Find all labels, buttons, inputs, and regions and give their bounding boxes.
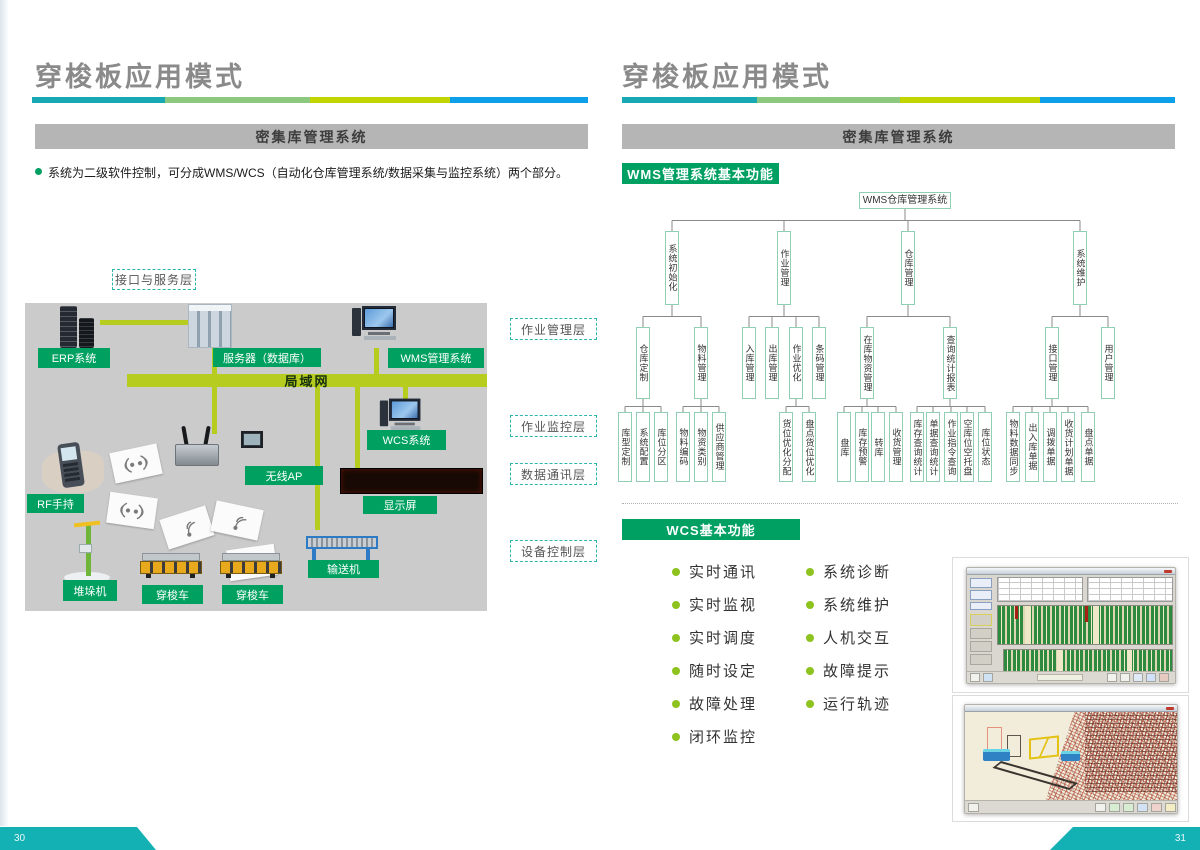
org-node-root: WMS仓库管理系统 (859, 192, 951, 209)
org-node-inbound: 入库管理 (742, 327, 756, 399)
accent-bar-blue (1040, 97, 1175, 103)
wifi-signal-icon (109, 443, 162, 483)
wcs-feature-label: 系统维护 (823, 594, 891, 615)
rack-empty-column (1057, 650, 1063, 672)
toolbar-button (1107, 673, 1117, 682)
wms-computer-icon (352, 306, 398, 348)
wcs-feature-item: 实时监视 (672, 588, 757, 621)
layer-label-data-comm: 数据通讯层 (510, 463, 597, 485)
link-lan-conveyor (315, 387, 320, 530)
bullet-icon (806, 568, 814, 576)
wcs-feature-label: 随时设定 (689, 660, 757, 681)
wcs-feature-list-left: 实时通讯 实时监视 实时调度 随时设定 故障处理 闭环监控 (672, 555, 757, 753)
alarm-button (1151, 803, 1162, 812)
bullet-icon (672, 667, 680, 675)
shuttle-car-icon (220, 553, 282, 579)
bullet-icon (806, 700, 814, 708)
wcs-feature-label: 故障提示 (823, 660, 891, 681)
label-wcs: WCS系统 (367, 430, 446, 450)
org-node-l3: 库位分区 (654, 412, 668, 482)
org-node-l13: 库存查询统计 (910, 412, 924, 482)
org-node-l11: 转库 (871, 412, 885, 482)
bullet-icon (806, 601, 814, 609)
page-number-tab: 31 (1050, 827, 1200, 850)
org-node-whdef: 仓库定制 (636, 327, 650, 399)
bullet-icon (672, 700, 680, 708)
wcs-feature-item: 实时通讯 (672, 555, 757, 588)
window-titlebar (967, 568, 1175, 575)
org-node-matmgmt: 物料管理 (694, 327, 708, 399)
org-node-barcode: 条码管理 (812, 327, 826, 399)
wcs-feature-label: 故障处理 (689, 693, 757, 714)
wifi-signal-icon (159, 505, 214, 549)
rf-handheld-icon (42, 443, 104, 495)
toolbar-button (983, 673, 993, 682)
page-number: 30 (14, 833, 25, 844)
label-display: 显示屏 (363, 496, 437, 514)
wcs-feature-item: 运行轨迹 (806, 687, 891, 720)
accent-bar-lime (900, 97, 1040, 103)
org-node-stockmat: 在库物资管理 (860, 327, 874, 399)
rack-alarm-cell (1085, 606, 1088, 622)
sidebar-button (970, 602, 992, 610)
network-diagram: 局域网 (25, 303, 487, 611)
wcs-feature-item: 实时调度 (672, 621, 757, 654)
org-node-l16: 空库位空托盘 (960, 412, 974, 482)
bullet-icon (35, 168, 42, 175)
accent-bar-lime (310, 97, 450, 103)
layer-label-operation-monitor: 作业监控层 (510, 415, 597, 437)
bullet-icon (806, 667, 814, 675)
window-titlebar (965, 705, 1177, 712)
wcs-feature-item: 系统维护 (806, 588, 891, 621)
org-node-outbound: 出库管理 (765, 327, 779, 399)
pointer-button (1165, 803, 1176, 812)
wcs-feature-item: 闭环监控 (672, 720, 757, 753)
wireless-ap-icon (175, 426, 235, 470)
org-node-l17: 库位状态 (978, 412, 992, 482)
rack-empty-column (1025, 606, 1031, 644)
rack-empty-column (1093, 606, 1099, 644)
stacker-crane-icon (62, 522, 112, 584)
window-toolbar (967, 671, 1175, 683)
label-conveyor: 输送机 (308, 560, 379, 578)
rack-wireframe-dense (1085, 712, 1178, 792)
org-node-l5: 物资类别 (694, 412, 708, 482)
org-node-l14: 单据查询统计 (926, 412, 940, 482)
bullet-icon (806, 634, 814, 642)
bullet-icon (672, 601, 680, 609)
fit-view-button (1137, 803, 1148, 812)
label-server: 服务器（数据库） (213, 348, 321, 367)
lock-button (1109, 803, 1120, 812)
org-node-job: 作业管理 (777, 231, 791, 305)
shuttle-3d-icon (1061, 751, 1080, 761)
wcs-feature-label: 闭环监控 (689, 726, 757, 747)
status-table (1087, 577, 1173, 602)
wcs-feature-item: 人机交互 (806, 621, 891, 654)
display-board-icon (340, 468, 483, 494)
wcs-monitor-screenshot (952, 557, 1189, 693)
page-title: 穿梭板应用模式 (622, 55, 832, 94)
layer-label-operation-mgmt: 作业管理层 (510, 318, 597, 340)
shuttle-car-icon (140, 553, 202, 579)
wcs-feature-label: 系统诊断 (823, 561, 891, 582)
wcs-feature-item: 故障提示 (806, 654, 891, 687)
org-node-maint: 系统维护 (1073, 231, 1087, 305)
org-node-l21: 收货计划单据 (1061, 412, 1075, 482)
org-node-l19: 出入库单据 (1025, 412, 1039, 482)
org-node-init: 系统初始化 (665, 231, 679, 305)
org-node-l18: 物料数据同步 (1006, 412, 1020, 482)
label-wms: WMS管理系统 (388, 348, 484, 368)
accent-bar-blue (450, 97, 588, 103)
org-node-l9: 盘库 (837, 412, 851, 482)
database-server-icon (188, 304, 232, 348)
wcs-feature-label: 实时通讯 (689, 561, 757, 582)
conveyor-icon (306, 528, 380, 562)
label-shuttle-b: 穿梭车 (222, 585, 283, 604)
status-table (997, 577, 1083, 602)
link-lan-wcs (403, 387, 408, 399)
org-node-l12: 收货管理 (889, 412, 903, 482)
sidebar-cell (970, 628, 992, 639)
page-number-tab: 30 (0, 827, 160, 850)
accent-bar-green (165, 97, 310, 103)
selected-cell-highlight (1029, 735, 1059, 759)
section-banner: 密集库管理系统 (35, 124, 588, 149)
accent-bar-teal (622, 97, 757, 103)
toolbar-button (1146, 673, 1156, 682)
org-node-l7: 货位优化分配 (779, 412, 793, 482)
org-node-iface: 接口管理 (1045, 327, 1059, 399)
label-stacker: 堆垛机 (63, 580, 117, 601)
org-node-l22: 盘点单据 (1081, 412, 1095, 482)
wcs-feature-item: 故障处理 (672, 687, 757, 720)
org-node-jobopt: 作业优化 (789, 327, 803, 399)
sidebar-cell (970, 641, 992, 652)
org-node-l10: 库存预警 (855, 412, 869, 482)
page-number: 31 (1175, 833, 1186, 844)
label-rf: RF手持 (27, 494, 84, 513)
label-shuttle-a: 穿梭车 (142, 585, 203, 604)
sidebar-button (970, 578, 992, 588)
org-node-l2: 系统配置 (636, 412, 650, 482)
toolbar-button (1120, 673, 1130, 682)
sidebar-cell (970, 614, 992, 626)
rack-map-lower (1003, 649, 1173, 673)
erp-server-icon (52, 306, 100, 348)
org-node-l1: 库型定制 (618, 412, 632, 482)
warehouse-3d-screenshot (952, 695, 1189, 822)
wcs-feature-label: 实时调度 (689, 627, 757, 648)
lock-button (1123, 803, 1134, 812)
bullet-icon (672, 568, 680, 576)
bullet-icon (672, 634, 680, 642)
page-edge-shading (0, 0, 9, 826)
wcs-monitor-window (966, 567, 1176, 684)
wcs-feature-label: 人机交互 (823, 627, 891, 648)
org-node-l15: 作业指令查询 (944, 412, 958, 482)
wcs-feature-label: 运行轨迹 (823, 693, 891, 714)
wcs-feature-label: 实时监视 (689, 594, 757, 615)
wcs-feature-item: 系统诊断 (806, 555, 891, 588)
org-node-l6: 供应商管理 (712, 412, 726, 482)
lan-bus: 局域网 (127, 374, 487, 387)
level-indicator (1037, 674, 1083, 681)
window-toolbar (965, 800, 1177, 813)
label-erp: ERP系统 (38, 348, 110, 368)
sidebar-cell (970, 654, 992, 665)
layer-label-interface: 接口与服务层 (112, 269, 196, 290)
org-node-query: 查询统计报表 (943, 327, 957, 399)
link-wms-lan (374, 348, 379, 375)
ap-terminal-icon (241, 431, 263, 448)
org-node-l20: 调拨单据 (1043, 412, 1057, 482)
org-node-l4: 物料编码 (676, 412, 690, 482)
bullet-icon (672, 733, 680, 741)
link-lan-display (355, 387, 360, 469)
sidebar-button (970, 590, 992, 600)
pan-button (1095, 803, 1106, 812)
toolbar-button (1133, 673, 1143, 682)
shuttle-3d-icon (983, 749, 1010, 761)
accent-bar-green (757, 97, 900, 103)
wifi-signal-icon (210, 500, 263, 540)
org-node-wh: 仓库管理 (901, 231, 915, 305)
page-title: 穿梭板应用模式 (35, 55, 245, 94)
org-node-l8: 盘点货位优化 (802, 412, 816, 482)
toolbar-button (970, 673, 980, 682)
wcs-feature-list-right: 系统诊断 系统维护 人机交互 故障提示 运行轨迹 (806, 555, 891, 720)
rack-alarm-cell (1015, 606, 1018, 619)
wifi-signal-icon (106, 492, 158, 529)
accent-bar-teal (32, 97, 165, 103)
section-banner: 密集库管理系统 (622, 124, 1175, 149)
toolbar-button (968, 803, 979, 812)
org-node-user: 用户管理 (1101, 327, 1115, 399)
wms-section-header: WMS管理系统基本功能 (622, 163, 779, 184)
dotted-separator (622, 503, 1178, 504)
intro-text: 系统为二级软件控制，可分成WMS/WCS（自动化仓库管理系统/数据采集与监控系统… (48, 164, 568, 181)
layer-label-device-control: 设备控制层 (510, 540, 597, 562)
wcs-feature-item: 随时设定 (672, 654, 757, 687)
wcs-section-header: WCS基本功能 (622, 519, 800, 540)
warehouse-3d-window (964, 704, 1178, 814)
rack-empty-column (1127, 650, 1132, 672)
exit-button (1159, 673, 1169, 682)
label-ap: 无线AP (245, 466, 323, 485)
brochure-spread: 穿梭板应用模式 密集库管理系统 系统为二级软件控制，可分成WMS/WCS（自动化… (0, 0, 1200, 850)
